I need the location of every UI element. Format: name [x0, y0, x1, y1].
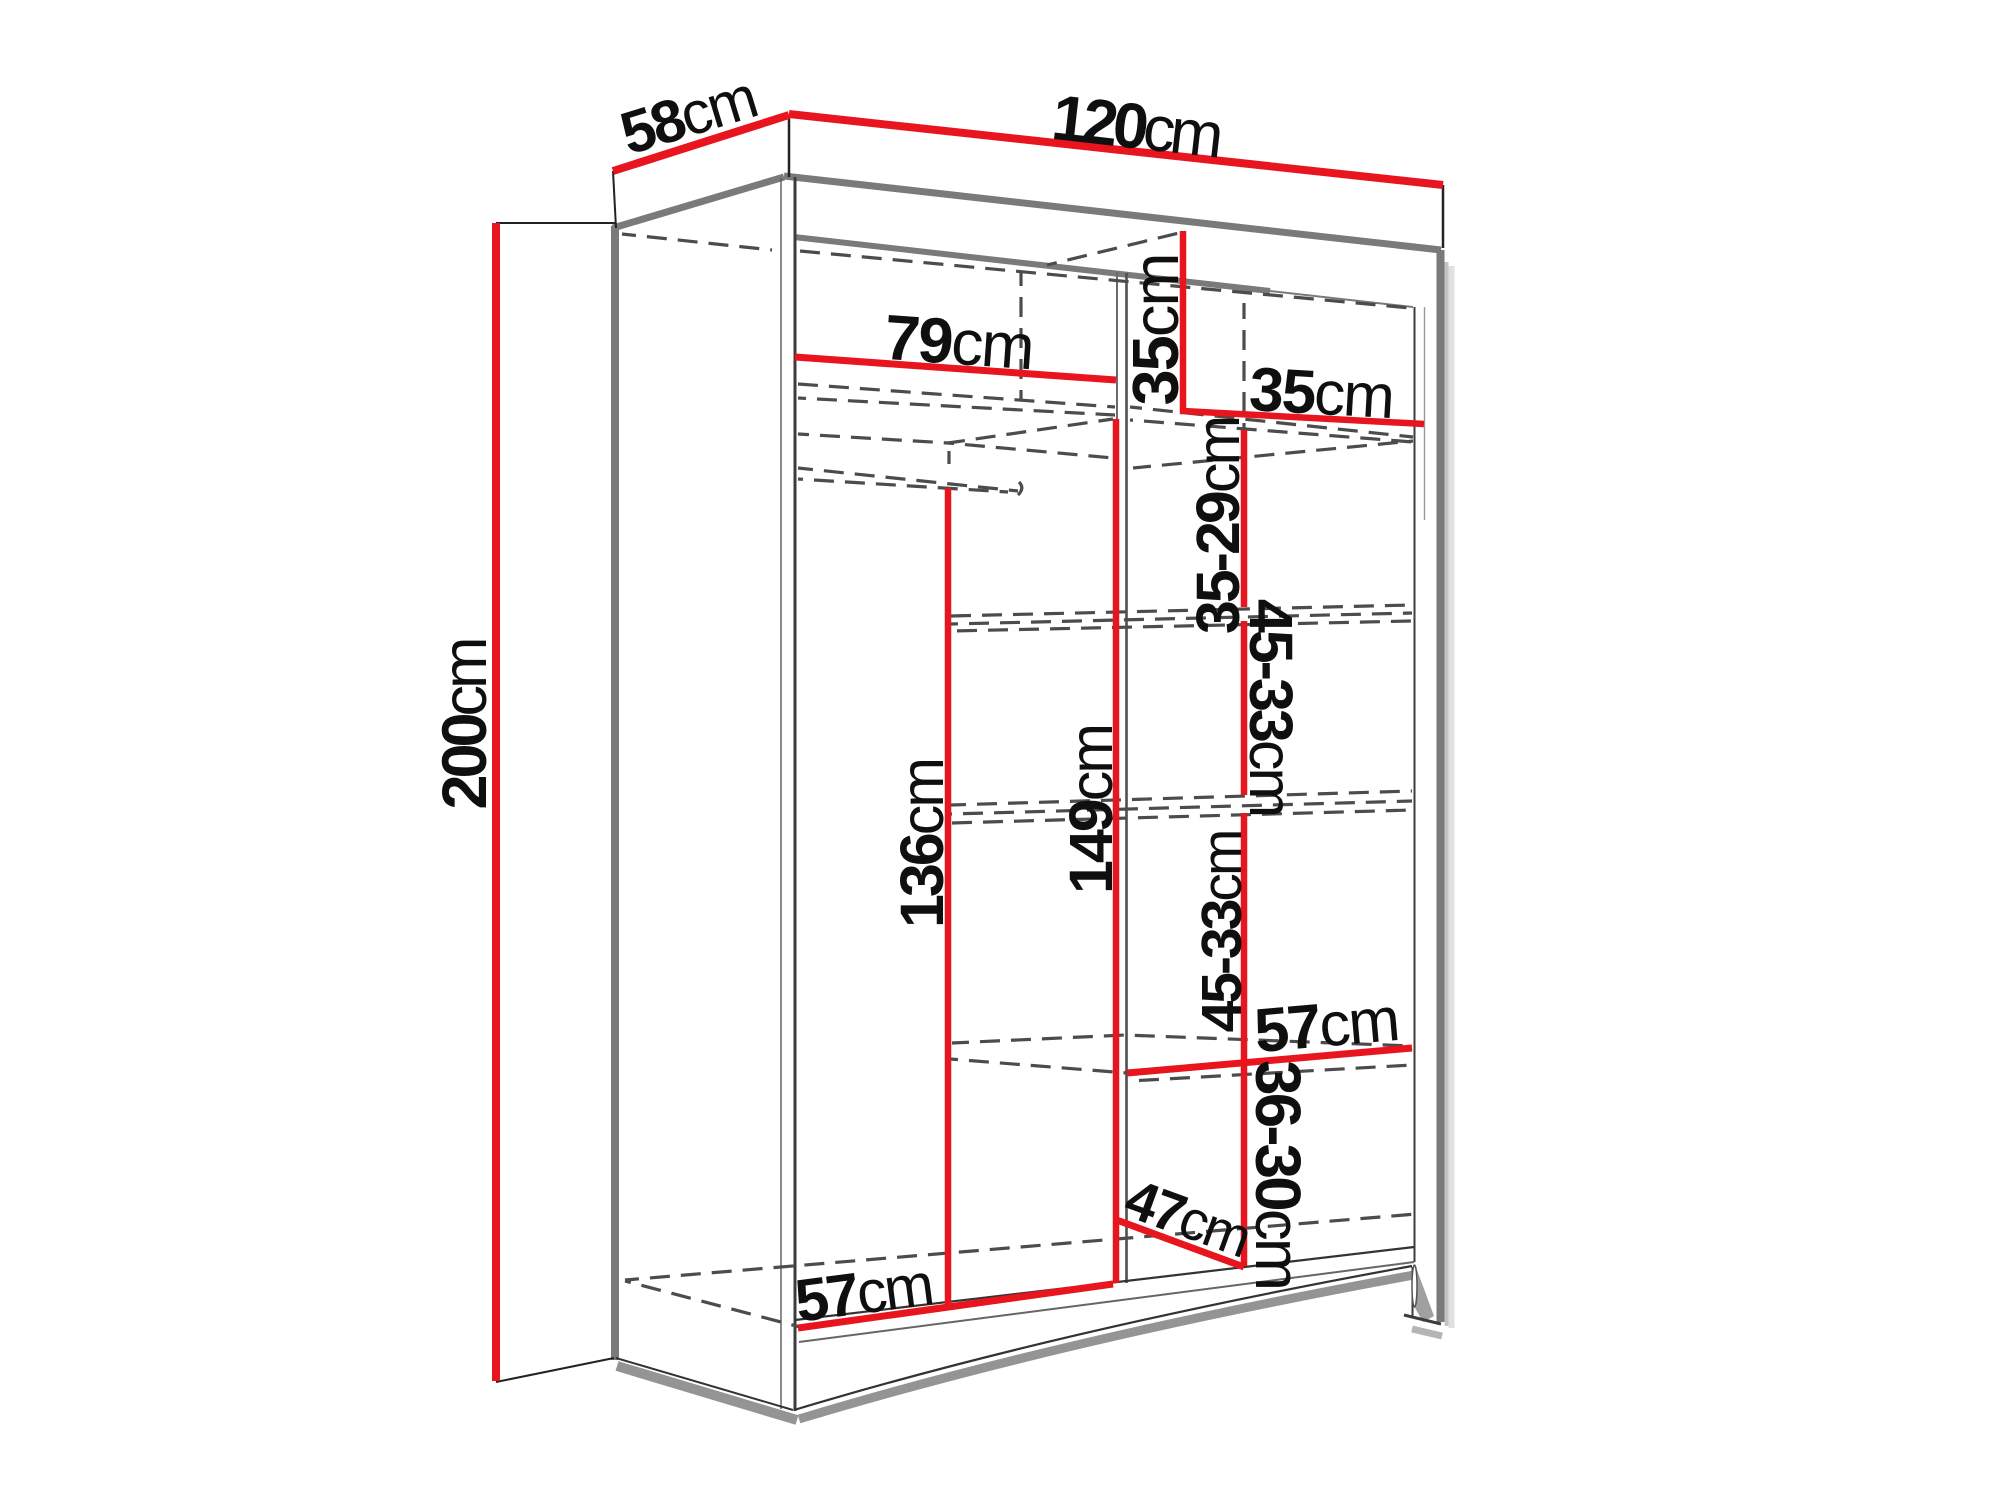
- svg-text:200cm: 200cm: [430, 640, 500, 810]
- svg-text:79cm: 79cm: [882, 301, 1035, 383]
- svg-text:36-30cm: 36-30cm: [1242, 1060, 1314, 1288]
- svg-text:35cm: 35cm: [1248, 355, 1395, 432]
- svg-text:149cm: 149cm: [1057, 726, 1125, 894]
- svg-text:45-33cm: 45-33cm: [1237, 599, 1305, 815]
- svg-text:136cm: 136cm: [888, 760, 956, 928]
- svg-text:57cm: 57cm: [1252, 985, 1401, 1066]
- svg-text:35cm: 35cm: [1119, 255, 1192, 406]
- svg-text:45-33cm: 45-33cm: [1190, 832, 1254, 1033]
